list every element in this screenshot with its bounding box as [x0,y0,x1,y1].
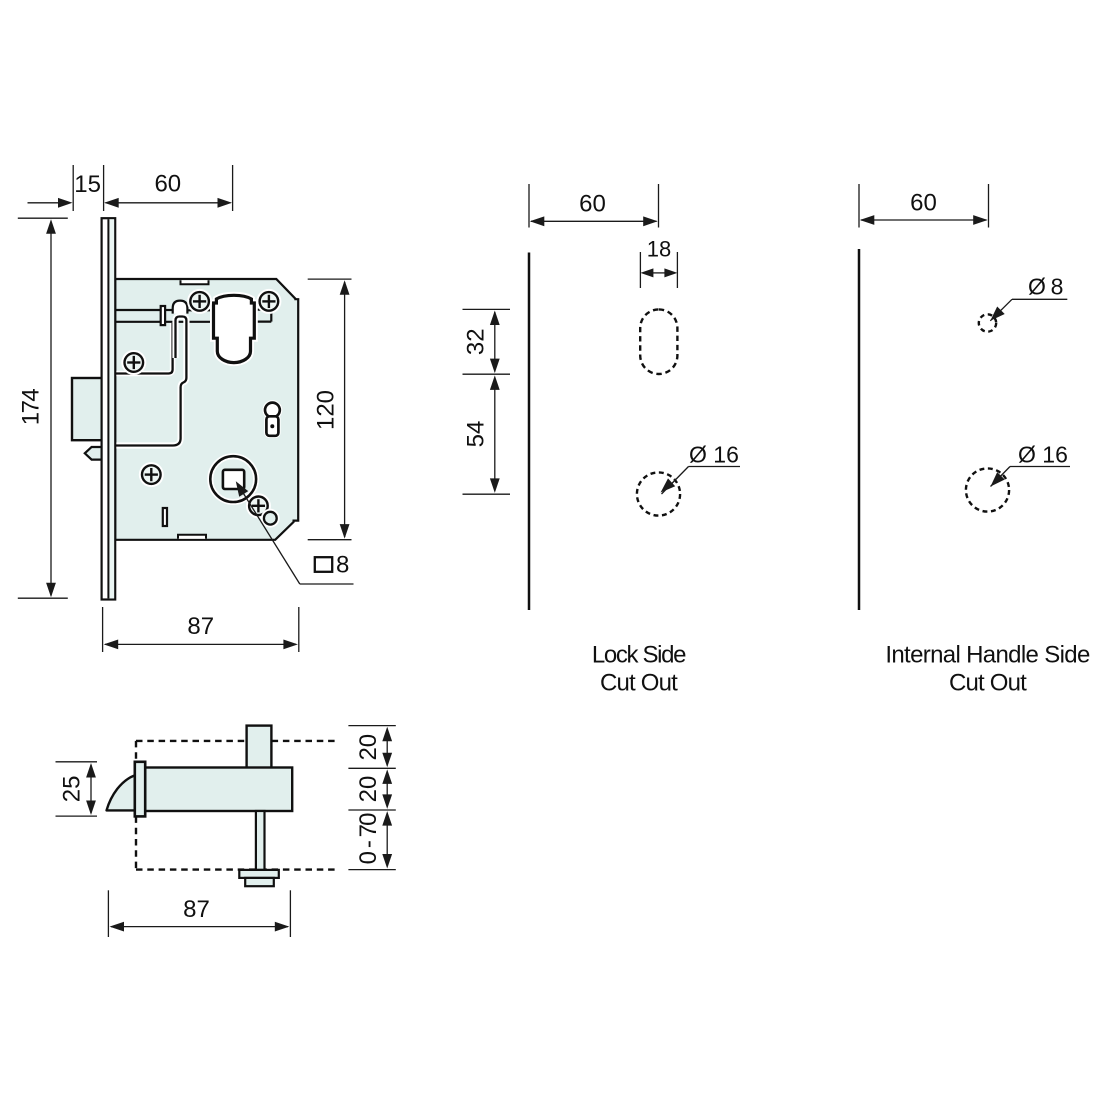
svg-text:Ø 8: Ø 8 [1028,274,1063,300]
svg-text:20: 20 [355,734,382,761]
svg-text:87: 87 [183,896,210,923]
svg-text:60: 60 [910,190,937,217]
svg-text:25: 25 [59,776,86,803]
svg-text:60: 60 [154,171,181,198]
svg-text:Cut Out: Cut Out [949,670,1027,697]
svg-text:Ø 16: Ø 16 [1018,442,1068,468]
svg-text:60: 60 [579,191,606,218]
svg-text:54: 54 [463,421,490,448]
svg-text:Internal Handle Side: Internal Handle Side [885,642,1090,669]
svg-text:Ø 16: Ø 16 [689,442,739,468]
svg-text:15: 15 [74,171,101,198]
svg-text:Lock Side: Lock Side [592,642,686,669]
svg-text:8: 8 [336,552,349,579]
svg-text:32: 32 [463,328,490,355]
svg-text:87: 87 [187,613,214,640]
svg-text:18: 18 [647,237,671,262]
svg-text:120: 120 [313,390,340,430]
svg-text:Cut Out: Cut Out [600,670,678,697]
svg-text:174: 174 [18,389,45,426]
svg-text:0 - 70: 0 - 70 [355,813,382,865]
svg-text:20: 20 [355,776,382,803]
